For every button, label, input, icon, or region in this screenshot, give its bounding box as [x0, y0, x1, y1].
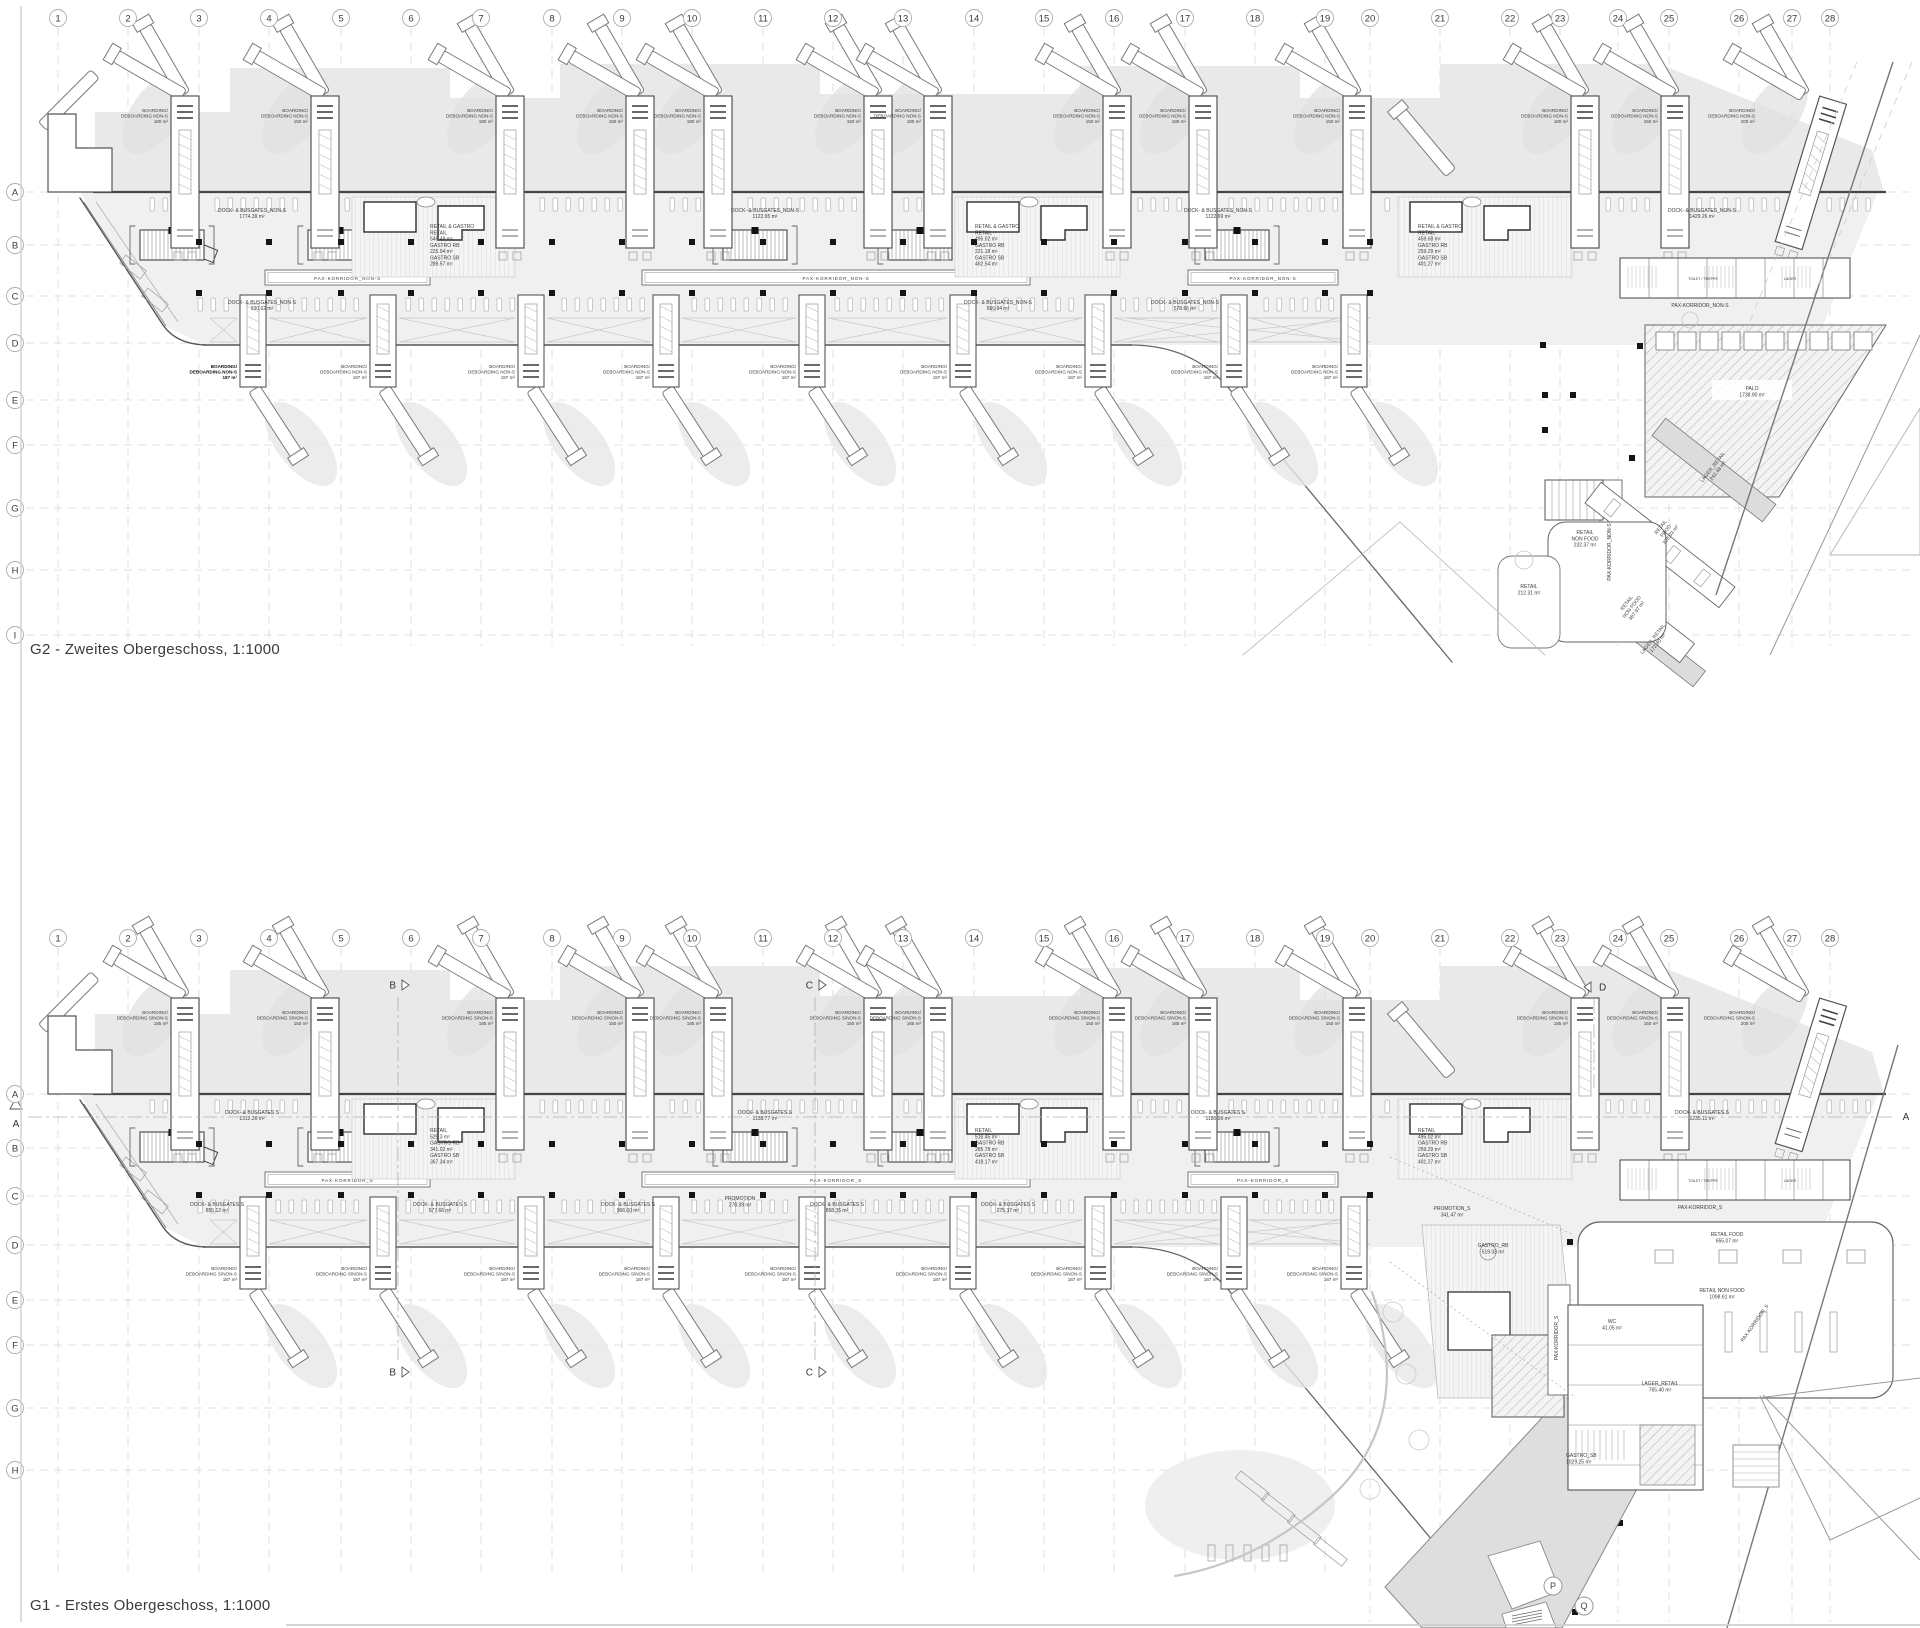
svg-text:27: 27	[1787, 13, 1798, 24]
svg-text:21: 21	[1435, 13, 1446, 24]
svg-text:BOARDING/DEBOARDING NON-S187 m: BOARDING/DEBOARDING NON-S187 m²	[749, 364, 797, 380]
svg-text:A: A	[12, 1089, 19, 1100]
svg-text:PAX-KORRIDOR_S: PAX-KORRIDOR_S	[1554, 1315, 1560, 1360]
svg-text:21: 21	[1435, 933, 1446, 944]
svg-text:BOARDING/DEBOARDING S/NON-S187: BOARDING/DEBOARDING S/NON-S187 m²	[1287, 1266, 1339, 1282]
svg-text:12: 12	[828, 933, 839, 944]
svg-text:2: 2	[125, 13, 130, 24]
svg-text:BOARDING/DEBOARDING S/NON-S187: BOARDING/DEBOARDING S/NON-S187 m²	[745, 1266, 797, 1282]
svg-text:TOILET / TREPPE: TOILET / TREPPE	[1688, 277, 1718, 281]
svg-text:D: D	[12, 1240, 19, 1251]
svg-text:19: 19	[1320, 13, 1331, 24]
svg-text:22: 22	[1505, 13, 1516, 24]
svg-text:25: 25	[1664, 13, 1675, 24]
svg-text:BOARDING/DEBOARDING NON-S187 m: BOARDING/DEBOARDING NON-S187 m²	[1291, 364, 1339, 380]
svg-text:BOARDING/DEBOARDING S/NON-S187: BOARDING/DEBOARDING S/NON-S187 m²	[896, 1266, 948, 1282]
svg-text:BOARDING/DEBOARDING NON-S187 m: BOARDING/DEBOARDING NON-S187 m²	[1035, 364, 1083, 380]
svg-text:2: 2	[125, 933, 130, 944]
svg-text:13: 13	[898, 13, 909, 24]
svg-text:12: 12	[828, 13, 839, 24]
svg-text:H: H	[12, 565, 19, 576]
svg-text:4: 4	[266, 933, 271, 944]
svg-text:28: 28	[1825, 933, 1836, 944]
svg-text:E: E	[12, 395, 18, 406]
svg-text:10: 10	[687, 13, 698, 24]
svg-text:1: 1	[55, 933, 60, 944]
svg-text:8: 8	[549, 933, 554, 944]
svg-text:23: 23	[1555, 13, 1566, 24]
svg-text:BOARDING/DEBOARDING NON-S187 m: BOARDING/DEBOARDING NON-S187 m²	[900, 364, 948, 380]
svg-text:26: 26	[1734, 933, 1745, 944]
svg-text:A: A	[12, 187, 19, 198]
svg-text:BOARDING/DEBOARDING S/NON-S187: BOARDING/DEBOARDING S/NON-S187 m²	[599, 1266, 651, 1282]
svg-text:25: 25	[1664, 933, 1675, 944]
svg-text:BOARDING/DEBOARDING S/NON-S187: BOARDING/DEBOARDING S/NON-S187 m²	[1167, 1266, 1219, 1282]
svg-text:20: 20	[1365, 13, 1376, 24]
svg-text:22: 22	[1505, 933, 1516, 944]
svg-text:PAX-KORRIDOR_NON-S: PAX-KORRIDOR_NON-S	[1671, 303, 1729, 309]
svg-text:P: P	[1550, 1581, 1556, 1591]
svg-text:26: 26	[1734, 13, 1745, 24]
plan-title-g1: G1 - Erstes Obergeschoss, 1:1000	[30, 1597, 271, 1614]
svg-text:3: 3	[196, 13, 201, 24]
svg-text:F: F	[12, 1340, 18, 1351]
svg-text:F: F	[12, 440, 18, 451]
svg-text:PAX-KORRIDOR_S: PAX-KORRIDOR_S	[1678, 1205, 1723, 1211]
svg-text:20: 20	[1365, 933, 1376, 944]
plan-title-g2: G2 - Zweites Obergeschoss, 1:1000	[30, 641, 280, 658]
svg-text:24: 24	[1613, 13, 1624, 24]
svg-text:10: 10	[687, 933, 698, 944]
svg-text:5: 5	[338, 933, 343, 944]
svg-text:7: 7	[478, 13, 483, 24]
svg-text:28: 28	[1825, 13, 1836, 24]
svg-text:9: 9	[619, 933, 624, 944]
svg-text:BOARDING/DEBOARDING NON-S187 m: BOARDING/DEBOARDING NON-S187 m²	[1171, 364, 1219, 380]
terminal-floorplan-drawing: PAX-KORRIDOR_NON-SPAX-KORRIDOR_NON-SPAX-…	[0, 0, 1920, 1628]
svg-text:BOARDING/DEBOARDING S/NON-S187: BOARDING/DEBOARDING S/NON-S187 m²	[464, 1266, 516, 1282]
svg-text:16: 16	[1109, 933, 1120, 944]
svg-text:BOARDING/DEBOARDING NON-S187 m: BOARDING/DEBOARDING NON-S187 m²	[320, 364, 368, 380]
svg-text:27: 27	[1787, 933, 1798, 944]
svg-text:C: C	[806, 981, 813, 992]
svg-text:17: 17	[1180, 13, 1191, 24]
svg-text:BOARDING/DEBOARDING S/NON-S187: BOARDING/DEBOARDING S/NON-S187 m²	[186, 1266, 238, 1282]
svg-text:PROMOTION278.39 m²: PROMOTION278.39 m²	[725, 1196, 756, 1208]
svg-text:4: 4	[266, 13, 271, 24]
svg-text:3: 3	[196, 933, 201, 944]
svg-text:14: 14	[969, 13, 980, 24]
svg-text:BOARDING/DEBOARDING NON-S187 m: BOARDING/DEBOARDING NON-S187 m²	[190, 364, 238, 380]
svg-text:1: 1	[55, 13, 60, 24]
svg-text:PAX-KORRIDOR_NON-S: PAX-KORRIDOR_NON-S	[1607, 523, 1613, 581]
svg-text:A: A	[1903, 1112, 1910, 1123]
svg-text:I: I	[14, 630, 17, 641]
svg-text:H: H	[12, 1465, 19, 1476]
svg-text:16: 16	[1109, 13, 1120, 24]
svg-text:C: C	[12, 291, 19, 302]
svg-text:LAGER: LAGER	[1784, 277, 1797, 281]
svg-text:BOARDING/DEBOARDING S/NON-S187: BOARDING/DEBOARDING S/NON-S187 m²	[1031, 1266, 1083, 1282]
svg-text:18: 18	[1250, 13, 1261, 24]
svg-text:B: B	[389, 1368, 396, 1379]
svg-text:RETAIL212.31 m²: RETAIL212.31 m²	[1518, 584, 1541, 596]
svg-text:C: C	[12, 1191, 19, 1202]
svg-text:14: 14	[969, 933, 980, 944]
svg-text:24: 24	[1613, 933, 1624, 944]
svg-text:G: G	[11, 1403, 18, 1414]
svg-text:8: 8	[549, 13, 554, 24]
svg-text:PAX-KORRIDOR_NON-S: PAX-KORRIDOR_NON-S	[1230, 276, 1297, 281]
svg-text:A: A	[13, 1119, 20, 1130]
svg-text:23: 23	[1555, 933, 1566, 944]
svg-text:7: 7	[478, 933, 483, 944]
svg-text:19: 19	[1320, 933, 1331, 944]
svg-text:11: 11	[758, 13, 768, 24]
svg-text:Q: Q	[1580, 1601, 1587, 1611]
svg-text:15: 15	[1039, 13, 1050, 24]
svg-text:B: B	[12, 1143, 18, 1154]
floorplan-sheet: PAX-KORRIDOR_NON-SPAX-KORRIDOR_NON-SPAX-…	[0, 0, 1920, 1628]
svg-text:BOARDING/DEBOARDING NON-S187 m: BOARDING/DEBOARDING NON-S187 m²	[468, 364, 516, 380]
plan-g1: PAX-KORRIDOR_SPAX-KORRIDOR_SPAX-KORRIDOR…	[7, 916, 1920, 1628]
svg-text:6: 6	[408, 13, 413, 24]
svg-text:C: C	[806, 1368, 813, 1379]
svg-text:17: 17	[1180, 933, 1191, 944]
svg-text:PAX-KORRIDOR_NON-S: PAX-KORRIDOR_NON-S	[803, 276, 870, 281]
svg-text:D: D	[12, 338, 19, 349]
svg-text:5: 5	[338, 13, 343, 24]
svg-text:PAX-KORRIDOR_S: PAX-KORRIDOR_S	[810, 1178, 862, 1183]
svg-text:PAX-KORRIDOR_S: PAX-KORRIDOR_S	[1237, 1178, 1289, 1183]
svg-text:B: B	[389, 981, 396, 992]
svg-text:18: 18	[1250, 933, 1261, 944]
svg-text:BOARDING/DEBOARDING S/NON-S187: BOARDING/DEBOARDING S/NON-S187 m²	[316, 1266, 368, 1282]
svg-text:B: B	[12, 240, 18, 251]
svg-text:G: G	[11, 503, 18, 514]
svg-text:9: 9	[619, 13, 624, 24]
svg-text:11: 11	[758, 933, 768, 944]
svg-text:13: 13	[898, 933, 909, 944]
svg-text:TOILET / TREPPE: TOILET / TREPPE	[1688, 1179, 1718, 1183]
plan-g2: PAX-KORRIDOR_NON-SPAX-KORRIDOR_NON-SPAX-…	[7, 10, 1920, 687]
svg-text:D: D	[1599, 983, 1606, 994]
svg-text:E: E	[12, 1295, 18, 1306]
svg-text:15: 15	[1039, 933, 1050, 944]
svg-text:BOARDING/DEBOARDING NON-S187 m: BOARDING/DEBOARDING NON-S187 m²	[603, 364, 651, 380]
svg-text:LAGER: LAGER	[1784, 1179, 1797, 1183]
svg-text:6: 6	[408, 933, 413, 944]
